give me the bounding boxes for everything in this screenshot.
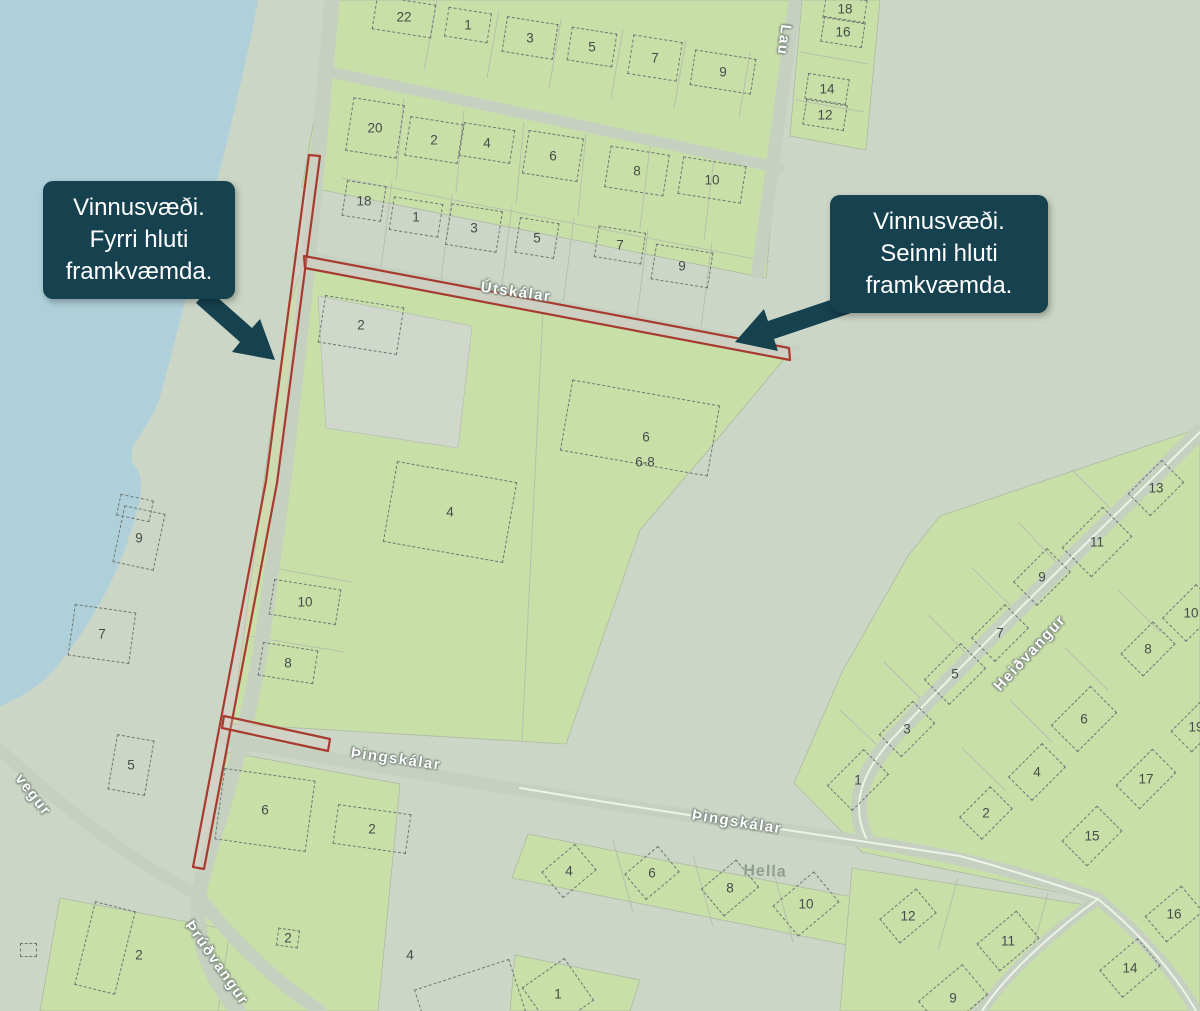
house-number: 6: [549, 149, 557, 164]
callout-first-phase-line2: Fyrri hluti: [47, 224, 231, 256]
house-number: 4: [1033, 765, 1041, 780]
house-number: 1: [464, 18, 472, 33]
house-number: 2: [982, 806, 990, 821]
house-number: 1: [554, 987, 562, 1002]
house-number: 13: [1148, 481, 1163, 496]
house-number: 12: [817, 108, 832, 123]
house-number: 15: [1084, 829, 1099, 844]
house-number: 7: [616, 238, 624, 253]
house-number: 5: [533, 231, 541, 246]
house-number: 2: [284, 931, 292, 946]
house-number: 3: [903, 722, 911, 737]
house-number: 7: [996, 626, 1004, 641]
house-number: 2: [135, 948, 143, 963]
house-number: 1: [412, 210, 420, 225]
callout-second-phase-line2: Seinni hluti: [834, 238, 1044, 270]
callout-first-phase-line3: framkvæmda.: [47, 256, 231, 288]
house-number: 9: [949, 991, 957, 1006]
house-number: 6: [1080, 712, 1088, 727]
house-number: 14: [1122, 961, 1137, 976]
house-number: 5: [951, 667, 959, 682]
map-canvas: Vinnusvæði. Fyrri hluti framkvæmda. Vinn…: [0, 0, 1200, 1011]
house-number: 22: [396, 10, 411, 25]
house-number: 6: [648, 866, 656, 881]
house-number: 7: [98, 627, 106, 642]
house-number: 8: [633, 164, 641, 179]
house-number: 20: [367, 121, 382, 136]
house-number: 17: [1138, 772, 1153, 787]
house-number: 8: [284, 656, 292, 671]
house-number: 14: [819, 82, 834, 97]
map-base-layer: [0, 0, 1200, 1011]
house-number: 2: [430, 133, 438, 148]
house-number: 4: [483, 136, 491, 151]
house-number: 6: [642, 430, 650, 445]
house-number: 19: [1188, 720, 1200, 735]
callout-first-phase: Vinnusvæði. Fyrri hluti framkvæmda.: [43, 181, 235, 299]
house-number: 3: [526, 31, 534, 46]
house-number: 7: [651, 51, 659, 66]
house-number: 1: [854, 773, 862, 788]
house-number: 8: [726, 881, 734, 896]
house-number: 16: [1166, 907, 1181, 922]
house-number: 10: [297, 595, 312, 610]
house-number: 6-8: [635, 455, 655, 470]
house-number: 2: [368, 822, 376, 837]
place-label-hella: Hella: [743, 862, 787, 881]
house-number: 5: [127, 758, 135, 773]
house-number: 10: [704, 173, 719, 188]
house-number: 12: [900, 909, 915, 924]
house-number: 5: [588, 40, 596, 55]
house-number: 8: [1144, 642, 1152, 657]
house-number: 9: [719, 65, 727, 80]
callout-second-phase-line1: Vinnusvæði.: [834, 206, 1044, 238]
house-number: 18: [837, 2, 852, 17]
house-number: 16: [835, 25, 850, 40]
house-number: 9: [135, 531, 143, 546]
house-number: 6: [261, 803, 269, 818]
house-number: 9: [1038, 570, 1046, 585]
callout-second-phase-line3: framkvæmda.: [834, 270, 1044, 302]
callout-first-phase-line1: Vinnusvæði.: [47, 192, 231, 224]
house-number: 4: [406, 948, 414, 963]
house-number: 18: [356, 194, 371, 209]
house-number: 9: [678, 259, 686, 274]
callout-second-phase: Vinnusvæði. Seinni hluti framkvæmda.: [830, 195, 1048, 313]
house-number: 4: [565, 864, 573, 879]
house-number: 11: [1001, 934, 1015, 949]
house-number: 4: [446, 505, 454, 520]
house-number: 11: [1090, 535, 1104, 550]
house-number: 10: [1183, 606, 1198, 621]
house-number: 2: [357, 318, 365, 333]
house-number: 10: [798, 897, 813, 912]
building-outline: [20, 943, 37, 957]
house-number: 3: [470, 221, 478, 236]
callout-arrow-first-phase: [196, 289, 275, 360]
water-area: [0, 0, 258, 706]
